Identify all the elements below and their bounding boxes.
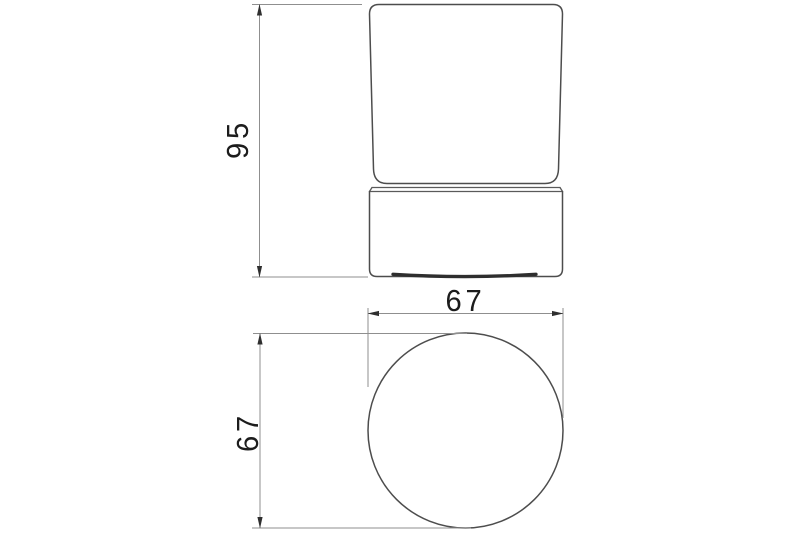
holder-body-outline — [370, 192, 563, 277]
dimension-top-width: 67 — [368, 283, 564, 418]
tumbler-glass-outline — [370, 5, 563, 184]
arrow-down-icon — [257, 517, 262, 529]
dimension-value-depth: 67 — [230, 412, 265, 452]
arrow-left-icon — [368, 311, 380, 316]
top-view — [368, 333, 563, 528]
dimension-value-height: 95 — [220, 119, 255, 159]
drawing-canvas: 95 67 67 — [0, 0, 800, 533]
holder-foot-shadow-line — [393, 274, 536, 276]
dimension-top-depth: 67 — [230, 333, 471, 529]
arrow-up-icon — [257, 4, 262, 16]
front-view — [370, 5, 563, 277]
technical-drawing: 95 67 67 — [0, 0, 800, 533]
arrow-right-icon — [552, 311, 564, 316]
dimension-value-width: 67 — [446, 283, 486, 318]
top-view-circle — [368, 333, 563, 528]
arrow-down-icon — [257, 266, 262, 278]
arrow-up-icon — [257, 333, 262, 345]
dimension-front-height: 95 — [220, 4, 368, 278]
